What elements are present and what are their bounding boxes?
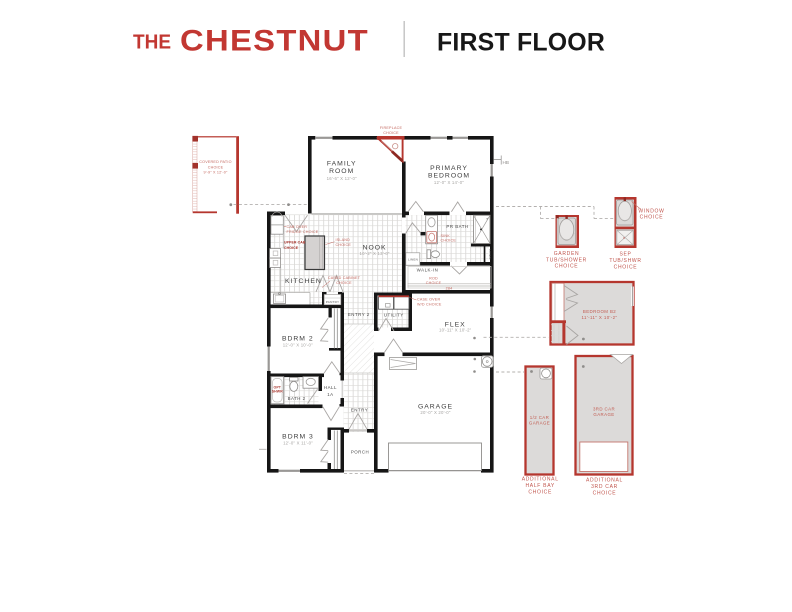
svg-text:CASE OVER: CASE OVER xyxy=(417,297,440,301)
svg-text:BDRM 2: BDRM 2 xyxy=(282,336,314,343)
svg-text:HALL: HALL xyxy=(324,385,337,390)
svg-text:PORCH: PORCH xyxy=(351,449,369,454)
svg-text:PANTRY: PANTRY xyxy=(326,300,339,304)
svg-text:1/2 CAR: 1/2 CAR xyxy=(530,415,549,420)
svg-text:FAMILY: FAMILY xyxy=(327,161,357,168)
svg-text:UTILITY: UTILITY xyxy=(384,313,404,318)
svg-text:x: x xyxy=(623,236,625,240)
svg-text:CHOICE: CHOICE xyxy=(208,165,224,169)
svg-text:ADDITIONAL: ADDITIONAL xyxy=(522,476,559,482)
svg-text:12'-0" X 14'-0": 12'-0" X 14'-0" xyxy=(434,180,464,185)
svg-text:284: 284 xyxy=(446,286,453,290)
svg-text:CHOICE: CHOICE xyxy=(284,246,299,250)
svg-text:ROOM: ROOM xyxy=(329,168,354,175)
svg-text:CHOICE: CHOICE xyxy=(555,264,579,270)
svg-text:12'-0" X 11'-0": 12'-0" X 11'-0" xyxy=(283,440,313,445)
svg-text:3RD CAR: 3RD CAR xyxy=(593,407,615,412)
svg-text:CHOICE: CHOICE xyxy=(614,264,638,270)
svg-text:CHOICE: CHOICE xyxy=(336,281,352,285)
svg-text:PR BATH: PR BATH xyxy=(446,224,468,229)
svg-text:CAB OVER: CAB OVER xyxy=(287,225,308,229)
svg-text:GARAGE: GARAGE xyxy=(593,412,614,417)
svg-text:CHOICE: CHOICE xyxy=(336,243,352,247)
svg-text:FIRST FLOOR: FIRST FLOOR xyxy=(437,29,605,57)
svg-text:COVERED PATIO: COVERED PATIO xyxy=(199,160,231,164)
svg-text:SEP: SEP xyxy=(619,252,631,258)
svg-text:ENTRY: ENTRY xyxy=(351,408,368,413)
svg-text:ISLAND: ISLAND xyxy=(336,238,351,242)
svg-text:GARDEN: GARDEN xyxy=(554,251,580,257)
svg-text:WALK-IN: WALK-IN xyxy=(417,268,439,273)
svg-text:12'-0" X 10'-0": 12'-0" X 10'-0" xyxy=(283,343,313,348)
svg-text:KITCHEN: KITCHEN xyxy=(285,278,322,285)
svg-text:CHOICE: CHOICE xyxy=(383,131,399,135)
svg-text:TUB/SHWR: TUB/SHWR xyxy=(609,258,641,264)
svg-text:1A: 1A xyxy=(327,392,333,397)
svg-text:LINEN: LINEN xyxy=(488,249,492,259)
svg-text:CASED CABINET: CASED CABINET xyxy=(328,276,361,280)
svg-text:CHOICE: CHOICE xyxy=(426,281,442,285)
svg-text:LINEN: LINEN xyxy=(408,258,418,262)
svg-text:CHOICE: CHOICE xyxy=(528,489,552,495)
svg-text:BATH 2: BATH 2 xyxy=(288,396,306,401)
svg-text:PRIMARY: PRIMARY xyxy=(430,165,468,172)
svg-text:UPPER CAB: UPPER CAB xyxy=(284,241,306,245)
svg-text:11'-11" X 10'-2": 11'-11" X 10'-2" xyxy=(582,315,618,320)
svg-text:GARAGE: GARAGE xyxy=(529,421,550,426)
svg-text:BEDROOM B2: BEDROOM B2 xyxy=(583,309,616,314)
svg-text:CHESTNUT: CHESTNUT xyxy=(180,24,369,57)
svg-text:CHOICE: CHOICE xyxy=(593,491,617,497)
svg-text:SHWR: SHWR xyxy=(272,389,283,393)
svg-text:BEDROOM: BEDROOM xyxy=(428,172,470,179)
svg-text:HB: HB xyxy=(503,160,509,165)
svg-text:ENTRY 2: ENTRY 2 xyxy=(348,312,370,317)
svg-text:THE: THE xyxy=(133,32,171,54)
svg-text:W/D CHOICE: W/D CHOICE xyxy=(417,302,442,306)
svg-text:10'-11" X 10'-2": 10'-11" X 10'-2" xyxy=(439,328,472,333)
svg-text:ADDITIONAL: ADDITIONAL xyxy=(586,478,623,484)
svg-text:SINK: SINK xyxy=(441,234,451,238)
svg-text:CHOICE: CHOICE xyxy=(441,238,457,242)
svg-text:FIREPLACE: FIREPLACE xyxy=(380,126,403,130)
svg-text:3RD CAR: 3RD CAR xyxy=(591,484,618,490)
svg-text:9'-9" X 12'-0": 9'-9" X 12'-0" xyxy=(203,171,228,175)
svg-text:10'-2" X 13'-0": 10'-2" X 13'-0" xyxy=(360,251,390,256)
svg-text:CHOICE: CHOICE xyxy=(640,215,664,221)
svg-text:WINDOW: WINDOW xyxy=(638,209,664,215)
svg-text:HALF BAY: HALF BAY xyxy=(525,483,554,489)
svg-text:20'-0" X 20'-0": 20'-0" X 20'-0" xyxy=(420,410,450,415)
svg-text:ROD: ROD xyxy=(429,277,438,281)
svg-text:16'-6" X 12'-0": 16'-6" X 12'-0" xyxy=(327,176,357,181)
svg-text:FRIDGE CHOICE: FRIDGE CHOICE xyxy=(287,230,319,234)
svg-text:TUB/SHOWER: TUB/SHOWER xyxy=(546,257,587,263)
